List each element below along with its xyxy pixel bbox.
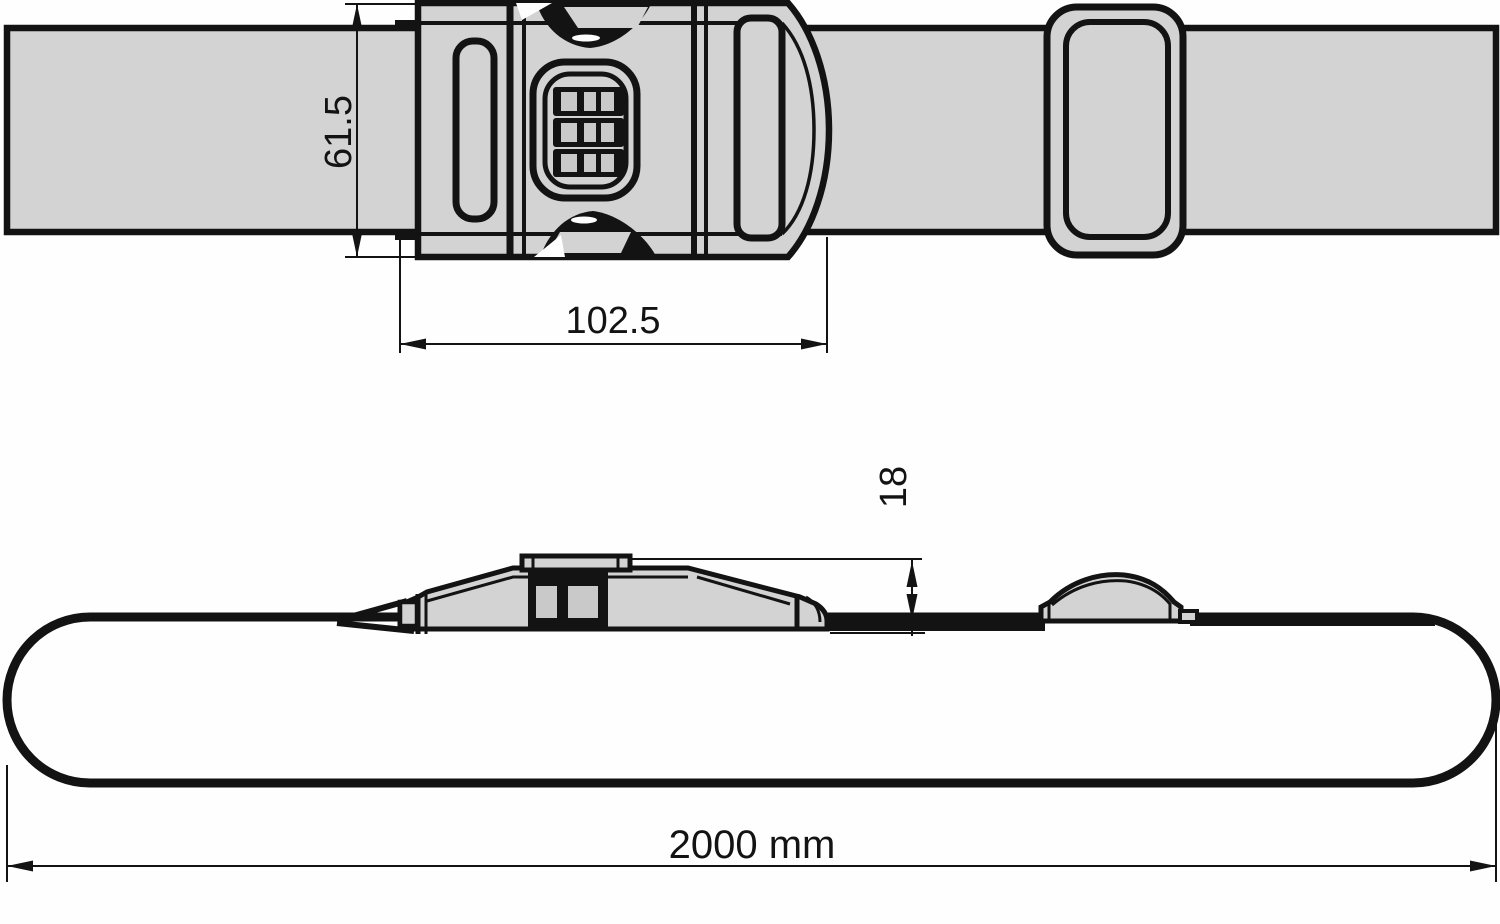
buckle-side-view: [337, 556, 827, 634]
arrow-up-icon: [352, 4, 363, 30]
buckle-lip-bottom: [395, 231, 420, 240]
arrow-up-icon: [907, 561, 918, 587]
side-view: [7, 556, 1496, 783]
arrow-right-icon: [1470, 861, 1496, 872]
buckle-length-label: 102.5: [565, 300, 660, 342]
combo-lock-dial-row: [553, 149, 624, 177]
drawing-canvas: 61.5 102.5: [0, 0, 1500, 924]
combo-lock-dial-row: [553, 118, 624, 147]
combination-lock: [533, 62, 637, 198]
dial-window: [601, 92, 614, 111]
buckle-profile-tip-detail: [400, 602, 417, 626]
latch-face-top: [564, 7, 648, 28]
arrow-down-icon: [352, 231, 363, 257]
profile-window: [568, 586, 598, 618]
strap-edge-band: [820, 617, 1045, 631]
arrow-right-icon: [801, 339, 827, 350]
technical-drawing: 61.5 102.5: [0, 0, 1500, 924]
latch-slit-top: [572, 35, 600, 42]
buckle-right-slot: [737, 18, 782, 238]
slider-window: [1066, 22, 1168, 237]
buckle-top-view: [395, 2, 829, 258]
slider-top-view: [1047, 7, 1183, 255]
strap-edge-band: [1190, 617, 1435, 626]
strap-width-label: 61.5: [318, 95, 360, 169]
push-tab: [522, 556, 630, 570]
dial-window: [561, 123, 577, 142]
dial-window: [601, 123, 614, 142]
slider-dome-step: [1180, 611, 1197, 622]
buckle-lip-top: [395, 20, 420, 29]
dial-window: [561, 92, 577, 111]
dial-window: [561, 154, 577, 172]
arrow-left-icon: [7, 861, 33, 872]
latch-slit-bottom: [571, 217, 597, 224]
profile-window: [536, 586, 557, 618]
dial-window: [584, 154, 596, 172]
combo-lock-dial-row: [553, 87, 624, 116]
dial-window: [584, 92, 596, 111]
slider-side-view: [1041, 575, 1197, 622]
top-view: [7, 2, 1496, 258]
arrow-left-icon: [400, 339, 426, 350]
dial-window: [601, 154, 614, 172]
total-length-label: 2000 mm: [669, 823, 836, 867]
dial-window: [584, 123, 596, 142]
buckle-height-label: 18: [873, 466, 915, 508]
buckle-left-slot: [456, 41, 494, 219]
strap-loop-outline: [7, 617, 1496, 783]
